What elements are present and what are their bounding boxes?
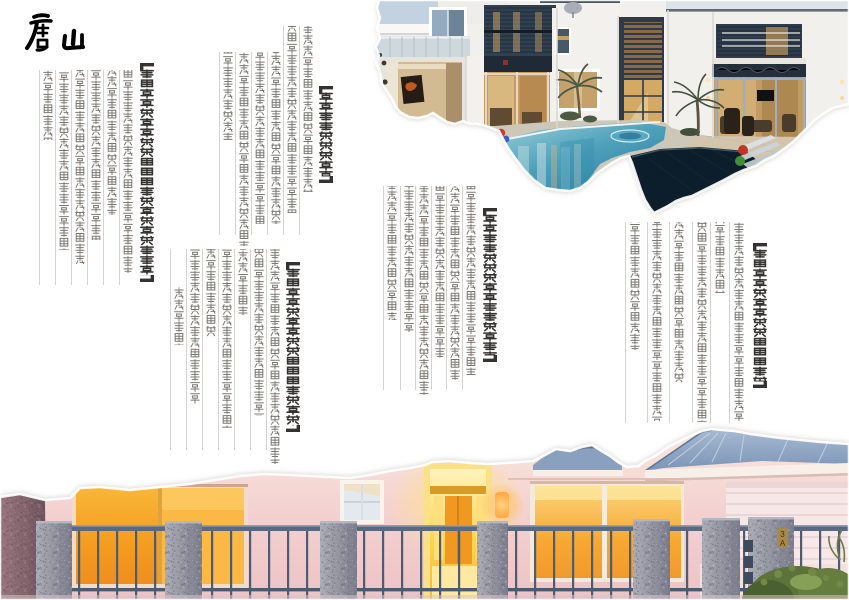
svg-text:3: 3 [780,530,785,539]
svg-text:A: A [780,539,786,548]
